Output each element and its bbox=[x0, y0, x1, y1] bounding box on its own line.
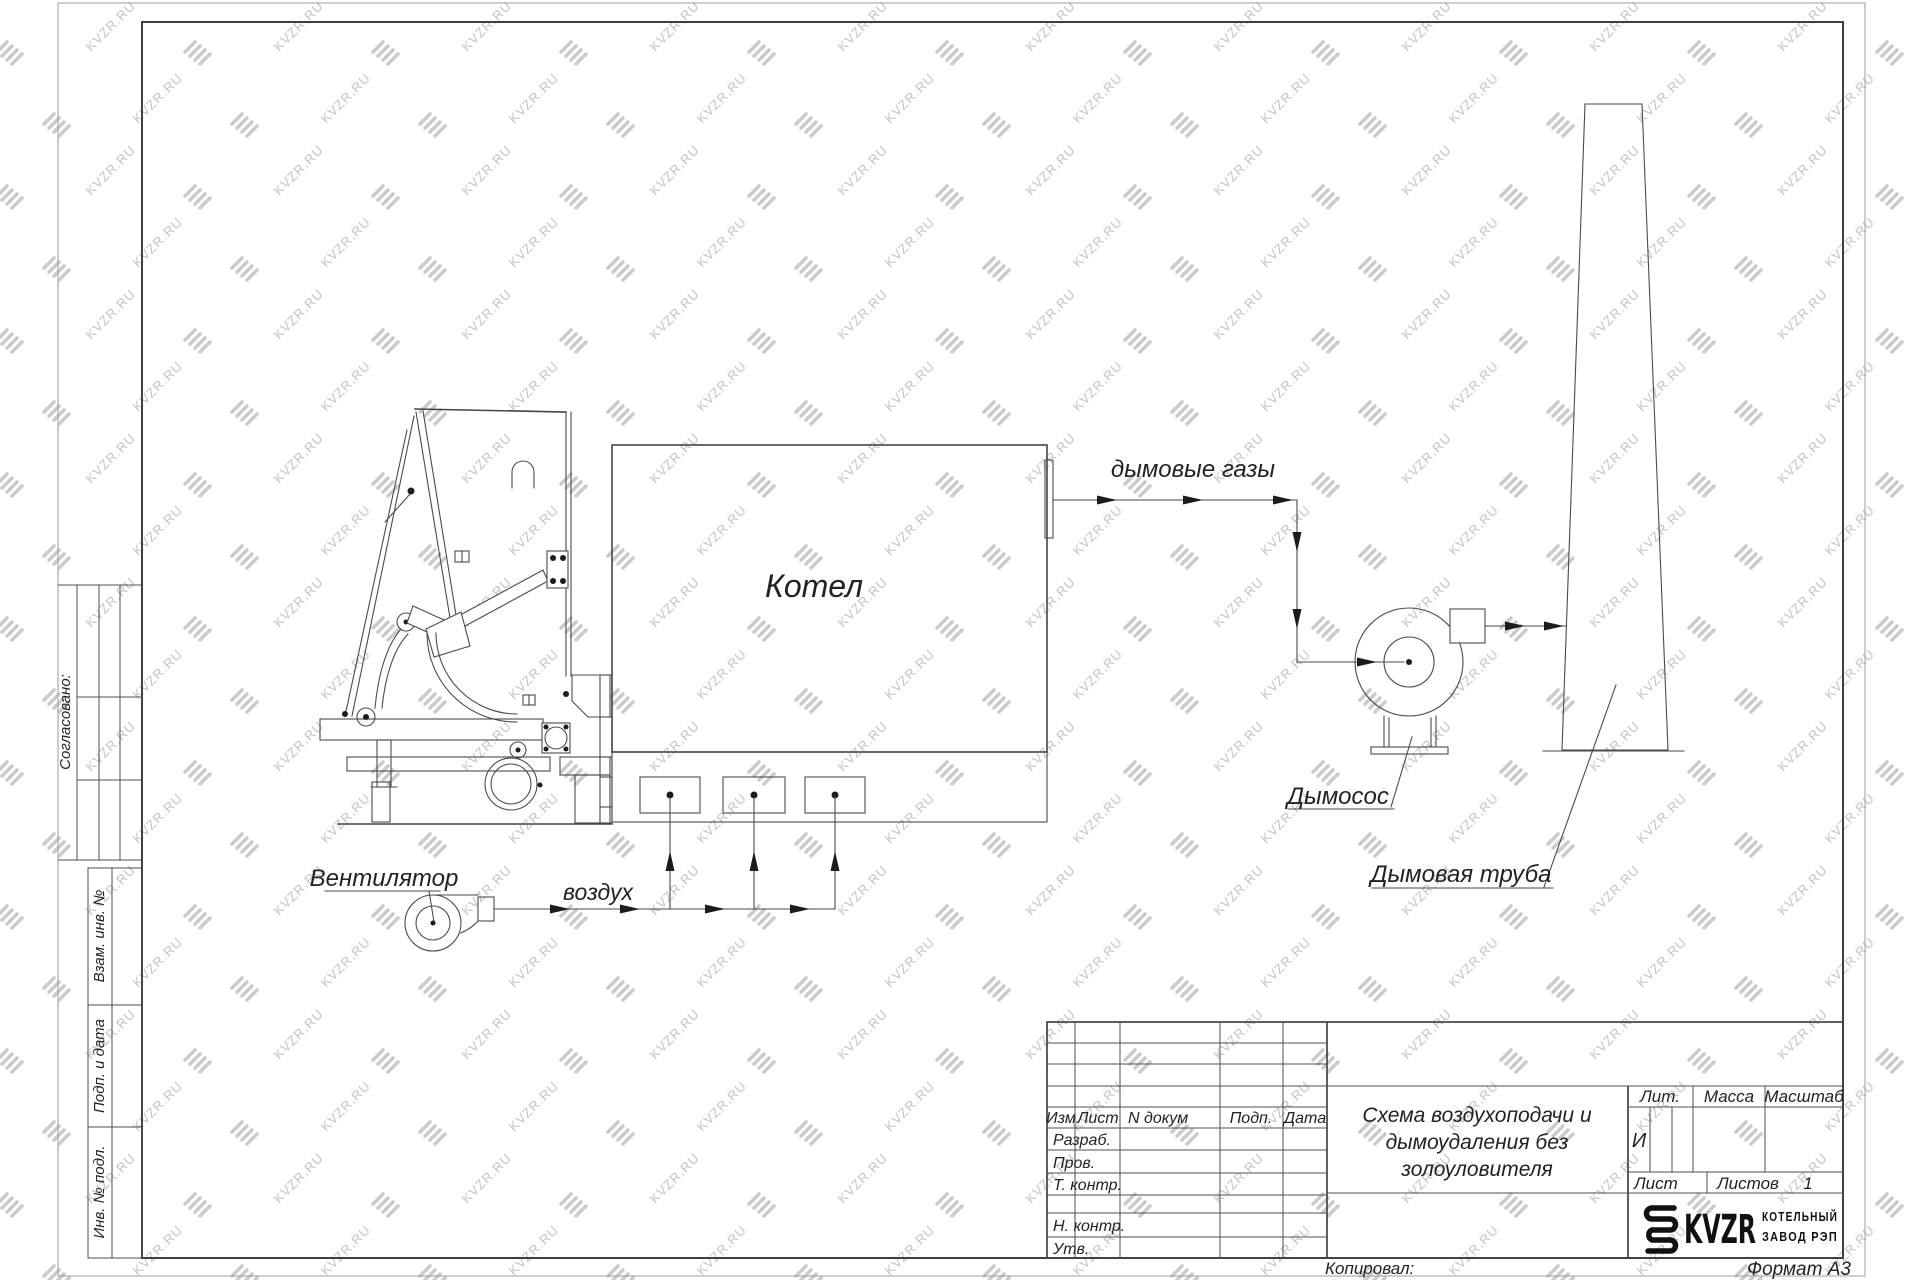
watermark-logo-icon bbox=[984, 1266, 1009, 1280]
watermark-logo-icon bbox=[1877, 330, 1902, 352]
watermark-text: KVZR.RU bbox=[1070, 646, 1126, 702]
drawing-title-line: Схема воздухоподачи и bbox=[1362, 1104, 1592, 1127]
watermark-logo-icon bbox=[420, 114, 445, 136]
org-name-line: ЗАВОД РЭП bbox=[1762, 1229, 1838, 1244]
watermark-logo-icon bbox=[1877, 906, 1902, 928]
watermark-text: KVZR.RU bbox=[1258, 502, 1314, 558]
watermark-logo-icon bbox=[984, 978, 1009, 1000]
watermark-text: KVZR.RU bbox=[647, 1006, 703, 1062]
watermark-logo-icon bbox=[420, 1122, 445, 1144]
watermark-text: KVZR.RU bbox=[83, 142, 139, 198]
watermark-text: KVZR.RU bbox=[1775, 862, 1831, 918]
watermark-logo-icon bbox=[1548, 834, 1573, 856]
watermark-text: KVZR.RU bbox=[1070, 502, 1126, 558]
watermark-logo-icon bbox=[373, 1194, 398, 1216]
watermark-logo-icon bbox=[796, 258, 821, 280]
watermark-logo-icon bbox=[1689, 1050, 1714, 1072]
watermark-text: KVZR.RU bbox=[506, 790, 562, 846]
watermark-logo-icon bbox=[1172, 978, 1197, 1000]
watermark-logo-icon bbox=[1125, 1050, 1150, 1072]
watermark-logo-icon bbox=[1736, 1122, 1761, 1144]
watermark-logo-icon bbox=[1689, 42, 1714, 64]
watermark-logo-icon bbox=[232, 1266, 257, 1280]
watermark-logo-icon bbox=[232, 114, 257, 136]
watermark-text: KVZR.RU bbox=[1446, 358, 1502, 414]
watermark-logo-icon bbox=[1125, 762, 1150, 784]
watermark-text: KVZR.RU bbox=[506, 1222, 562, 1278]
watermark-text: KVZR.RU bbox=[83, 0, 139, 54]
watermark-text: KVZR.RU bbox=[694, 1222, 750, 1278]
watermark-text: KVZR.RU bbox=[1399, 574, 1455, 630]
watermark-text: KVZR.RU bbox=[1587, 142, 1643, 198]
watermark-text: KVZR.RU bbox=[1399, 1006, 1455, 1062]
watermark-logo-icon bbox=[44, 114, 69, 136]
watermark-text: KVZR.RU bbox=[506, 934, 562, 990]
watermark-logo-icon bbox=[1689, 330, 1714, 352]
watermark-logo-icon bbox=[1689, 762, 1714, 784]
watermark-logo-icon bbox=[1172, 114, 1197, 136]
watermark-text: KVZR.RU bbox=[1822, 70, 1878, 126]
watermark-logo-icon bbox=[44, 978, 69, 1000]
watermark-logo-icon bbox=[420, 1266, 445, 1280]
watermark-logo-icon bbox=[1360, 258, 1385, 280]
watermark-logo-icon bbox=[0, 474, 22, 496]
signature-row-label: Утв. bbox=[1052, 1241, 1089, 1258]
copied-label: Копировал: bbox=[1325, 1259, 1415, 1278]
watermark-text: KVZR.RU bbox=[647, 1150, 703, 1206]
watermark-text: KVZR.RU bbox=[1258, 646, 1314, 702]
watermark-text: KVZR.RU bbox=[130, 214, 186, 270]
watermark-text: KVZR.RU bbox=[271, 718, 327, 774]
watermark-text: KVZR.RU bbox=[882, 502, 938, 558]
watermark-logo-icon bbox=[796, 402, 821, 424]
watermark-text: KVZR.RU bbox=[459, 430, 515, 486]
watermark-text: KVZR.RU bbox=[647, 430, 703, 486]
watermark-logo-icon bbox=[1736, 978, 1761, 1000]
watermark-text: KVZR.RU bbox=[130, 790, 186, 846]
watermark-logo-icon bbox=[1360, 978, 1385, 1000]
watermark-logo-icon bbox=[561, 186, 586, 208]
drawing-sheet: KVZR.RUKVZR.RUKVZR.RUKVZR.RUKVZR.RUKVZR.… bbox=[0, 0, 1920, 1280]
watermark-logo-icon bbox=[1501, 42, 1526, 64]
watermark-text: KVZR.RU bbox=[271, 142, 327, 198]
watermark-text: KVZR.RU bbox=[882, 1078, 938, 1134]
watermark-logo-icon bbox=[608, 834, 633, 856]
watermark-text: KVZR.RU bbox=[694, 214, 750, 270]
watermark-logo-icon bbox=[1125, 618, 1150, 640]
watermark-logo-icon bbox=[1313, 186, 1338, 208]
watermark-text: KVZR.RU bbox=[1587, 430, 1643, 486]
watermark-text: KVZR.RU bbox=[1211, 574, 1267, 630]
watermark-text: KVZR.RU bbox=[835, 0, 891, 54]
org-name-line: КОТЕЛЬНЫЙ bbox=[1762, 1209, 1838, 1224]
watermark-text: KVZR.RU bbox=[1822, 502, 1878, 558]
watermark-logo-icon bbox=[1877, 1194, 1902, 1216]
brand-text: KVZR bbox=[1684, 1207, 1756, 1253]
watermark-logo-icon bbox=[984, 258, 1009, 280]
watermark-logo-icon bbox=[1877, 1050, 1902, 1072]
watermark-text: KVZR.RU bbox=[694, 790, 750, 846]
watermark-logo-icon bbox=[1736, 258, 1761, 280]
watermark-text: KVZR.RU bbox=[694, 70, 750, 126]
side-block-label: Взам. инв. № bbox=[91, 890, 108, 983]
watermark-text: KVZR.RU bbox=[1775, 574, 1831, 630]
watermark-logo-icon bbox=[1548, 978, 1573, 1000]
watermark-text: KVZR.RU bbox=[459, 862, 515, 918]
watermark-logo-icon bbox=[561, 42, 586, 64]
watermark-text: KVZR.RU bbox=[318, 358, 374, 414]
air-flow-label: воздух bbox=[563, 879, 634, 905]
watermark-logo-icon bbox=[185, 762, 210, 784]
drawing-canvas: KVZR.RUKVZR.RUKVZR.RUKVZR.RUKVZR.RUKVZR.… bbox=[0, 0, 1920, 1280]
watermark-text: KVZR.RU bbox=[1023, 1006, 1079, 1062]
watermark-text: KVZR.RU bbox=[1446, 214, 1502, 270]
watermark-logo-icon bbox=[1877, 474, 1902, 496]
watermark-logo-icon bbox=[937, 330, 962, 352]
watermark-logo-icon bbox=[1172, 834, 1197, 856]
watermark-text: KVZR.RU bbox=[318, 214, 374, 270]
watermark-logo-icon bbox=[1736, 690, 1761, 712]
header-cell: Изм bbox=[1046, 1110, 1076, 1127]
watermark-logo-icon bbox=[984, 690, 1009, 712]
watermark-logo-icon bbox=[420, 258, 445, 280]
watermark-logo-icon bbox=[420, 834, 445, 856]
watermark-logo-icon bbox=[1501, 618, 1526, 640]
watermark-logo-icon bbox=[44, 258, 69, 280]
watermark-logo-icon bbox=[373, 906, 398, 928]
watermark-text: KVZR.RU bbox=[1775, 286, 1831, 342]
smoke-exhauster-label: Дымосос bbox=[1284, 783, 1389, 810]
watermark-logo-icon bbox=[796, 1122, 821, 1144]
watermark-logo-icon bbox=[373, 330, 398, 352]
watermark-text: KVZR.RU bbox=[1023, 142, 1079, 198]
watermark-text: KVZR.RU bbox=[1822, 646, 1878, 702]
watermark-text: KVZR.RU bbox=[835, 142, 891, 198]
signature-row-label: Т. контр. bbox=[1053, 1177, 1122, 1194]
watermark-text: KVZR.RU bbox=[130, 358, 186, 414]
watermark-text: KVZR.RU bbox=[694, 934, 750, 990]
watermark-logo-icon bbox=[232, 258, 257, 280]
watermark-logo-icon bbox=[1125, 906, 1150, 928]
watermark-logo-icon bbox=[1125, 42, 1150, 64]
watermark-text: KVZR.RU bbox=[1258, 358, 1314, 414]
lit-value: И bbox=[1632, 1130, 1647, 1152]
watermark-logo-icon bbox=[1125, 330, 1150, 352]
watermark-logo-icon bbox=[1313, 330, 1338, 352]
watermark-logo-icon bbox=[561, 762, 586, 784]
watermark-text: KVZR.RU bbox=[1070, 358, 1126, 414]
watermark-logo-icon bbox=[1877, 762, 1902, 784]
header-cell: Лист bbox=[1076, 1110, 1118, 1127]
watermark-logo-icon bbox=[1313, 42, 1338, 64]
watermark-text: KVZR.RU bbox=[835, 1150, 891, 1206]
fan-label: Вентилятор bbox=[310, 865, 459, 892]
watermark-text: KVZR.RU bbox=[459, 1006, 515, 1062]
watermark-text: KVZR.RU bbox=[1822, 214, 1878, 270]
watermark-logo-icon bbox=[749, 1050, 774, 1072]
watermark-logo-icon bbox=[232, 690, 257, 712]
watermark-logo-icon bbox=[1548, 690, 1573, 712]
scale-header: Масштаб bbox=[1764, 1087, 1845, 1106]
watermark-logo-icon bbox=[1548, 1266, 1573, 1280]
header-cell: Подп. bbox=[1230, 1110, 1273, 1127]
watermark-logo-icon bbox=[0, 330, 22, 352]
watermark-logo-icon bbox=[1313, 474, 1338, 496]
watermark-text: KVZR.RU bbox=[882, 1222, 938, 1278]
watermark-logo-icon bbox=[749, 1194, 774, 1216]
watermark-text: KVZR.RU bbox=[318, 1222, 374, 1278]
watermark-logo-icon bbox=[1736, 114, 1761, 136]
watermark-logo-icon bbox=[1360, 402, 1385, 424]
watermark-text: KVZR.RU bbox=[882, 790, 938, 846]
watermark-logo-icon bbox=[185, 618, 210, 640]
watermark-logo-icon bbox=[1501, 1194, 1526, 1216]
watermark-text: KVZR.RU bbox=[318, 934, 374, 990]
watermark-logo-icon bbox=[796, 834, 821, 856]
watermark-logo-icon bbox=[1313, 906, 1338, 928]
watermark-logo-icon bbox=[984, 546, 1009, 568]
watermark-text: KVZR.RU bbox=[1211, 286, 1267, 342]
watermark-logo-icon bbox=[1689, 186, 1714, 208]
watermark-logo-icon bbox=[1548, 402, 1573, 424]
watermark-logo-icon bbox=[44, 402, 69, 424]
watermark-logo-icon bbox=[1877, 42, 1902, 64]
watermark-logo-icon bbox=[373, 42, 398, 64]
watermark-text: KVZR.RU bbox=[1822, 358, 1878, 414]
watermark-logo-icon bbox=[1360, 546, 1385, 568]
watermark-logo-icon bbox=[561, 1050, 586, 1072]
watermark-text: KVZR.RU bbox=[1634, 934, 1690, 990]
watermark-text: KVZR.RU bbox=[1587, 286, 1643, 342]
watermark-logo-icon bbox=[1501, 330, 1526, 352]
watermark-logo-icon bbox=[1689, 474, 1714, 496]
watermark-logo-icon bbox=[1501, 1050, 1526, 1072]
side-block-label: Инв. № подл. bbox=[91, 1145, 108, 1238]
watermark-logo-icon bbox=[1360, 114, 1385, 136]
watermark-logo-icon bbox=[1736, 402, 1761, 424]
watermark-logo-icon bbox=[0, 1194, 22, 1216]
watermark-logo-icon bbox=[561, 330, 586, 352]
watermark-logo-icon bbox=[561, 618, 586, 640]
drawing-title-line: дымоудаления без bbox=[1386, 1131, 1569, 1154]
watermark-text: KVZR.RU bbox=[130, 934, 186, 990]
watermark-logo-icon bbox=[0, 906, 22, 928]
watermark-logo-icon bbox=[608, 978, 633, 1000]
watermark-logo-icon bbox=[937, 1050, 962, 1072]
watermark-text: KVZR.RU bbox=[506, 1078, 562, 1134]
watermark-text: KVZR.RU bbox=[459, 286, 515, 342]
watermark-text: KVZR.RU bbox=[1258, 70, 1314, 126]
watermark-text: KVZR.RU bbox=[1822, 790, 1878, 846]
sheet-label: Лист bbox=[1633, 1174, 1678, 1193]
watermark-text: KVZR.RU bbox=[130, 502, 186, 558]
watermark-text: KVZR.RU bbox=[1399, 718, 1455, 774]
watermark-text: KVZR.RU bbox=[130, 70, 186, 126]
watermark-logo-icon bbox=[373, 618, 398, 640]
watermark-logo-icon bbox=[0, 762, 22, 784]
agreed-label: Согласовано: bbox=[57, 674, 74, 770]
watermark-text: KVZR.RU bbox=[83, 574, 139, 630]
signature-row-label: Пров. bbox=[1053, 1155, 1095, 1172]
watermark-text: KVZR.RU bbox=[1634, 502, 1690, 558]
watermark-logo-icon bbox=[1501, 762, 1526, 784]
watermark-text: KVZR.RU bbox=[1587, 574, 1643, 630]
watermark-logo-icon bbox=[1360, 834, 1385, 856]
signature-row-label: Разраб. bbox=[1053, 1132, 1111, 1149]
watermark-logo-icon bbox=[1689, 906, 1714, 928]
watermark-text: KVZR.RU bbox=[271, 1006, 327, 1062]
watermark-text: KVZR.RU bbox=[459, 718, 515, 774]
watermark-text: KVZR.RU bbox=[1023, 574, 1079, 630]
watermark-logo-icon bbox=[937, 42, 962, 64]
watermark-text: KVZR.RU bbox=[83, 718, 139, 774]
watermark-text: KVZR.RU bbox=[1211, 142, 1267, 198]
watermark-logo-icon bbox=[185, 42, 210, 64]
watermark-logo-icon bbox=[44, 1266, 69, 1280]
watermark-logo-icon bbox=[44, 546, 69, 568]
watermark-logo-icon bbox=[608, 1266, 633, 1280]
smoke-exhauster-drawing: Дымосос bbox=[1284, 608, 1566, 810]
watermark-logo-icon bbox=[749, 618, 774, 640]
watermark-logo-icon bbox=[984, 1122, 1009, 1144]
watermark-text: KVZR.RU bbox=[1070, 934, 1126, 990]
watermark-logo-icon bbox=[0, 186, 22, 208]
watermark-logo-icon bbox=[0, 618, 22, 640]
watermark-logo-icon bbox=[185, 330, 210, 352]
watermark-text: KVZR.RU bbox=[694, 646, 750, 702]
watermark-text: KVZR.RU bbox=[1446, 934, 1502, 990]
watermark-text: KVZR.RU bbox=[318, 1078, 374, 1134]
watermark-logo-icon bbox=[1877, 186, 1902, 208]
header-cell: Дата bbox=[1282, 1110, 1326, 1127]
sheet-format-label: Формат А3 bbox=[1747, 1259, 1851, 1280]
watermark-text: KVZR.RU bbox=[1775, 430, 1831, 486]
watermark-text: KVZR.RU bbox=[506, 70, 562, 126]
watermark-text: KVZR.RU bbox=[1211, 1006, 1267, 1062]
watermark-text: KVZR.RU bbox=[1070, 70, 1126, 126]
watermark-text: KVZR.RU bbox=[506, 358, 562, 414]
watermark-text: KVZR.RU bbox=[647, 0, 703, 54]
watermark-logo-icon bbox=[185, 1050, 210, 1072]
watermark-logo-icon bbox=[749, 186, 774, 208]
watermark-logo-icon bbox=[1172, 258, 1197, 280]
watermark-text: KVZR.RU bbox=[1023, 0, 1079, 54]
watermark-text: KVZR.RU bbox=[882, 358, 938, 414]
watermark-logo-icon bbox=[749, 42, 774, 64]
sheets-value: 1 bbox=[1803, 1174, 1812, 1193]
watermark-text: KVZR.RU bbox=[835, 430, 891, 486]
watermark-logo-icon bbox=[185, 186, 210, 208]
watermark-text: KVZR.RU bbox=[1634, 70, 1690, 126]
watermark-text: KVZR.RU bbox=[318, 70, 374, 126]
watermark-logo-icon bbox=[984, 834, 1009, 856]
watermark-text: KVZR.RU bbox=[835, 1006, 891, 1062]
watermark-layer: KVZR.RUKVZR.RUKVZR.RUKVZR.RUKVZR.RUKVZR.… bbox=[0, 0, 1920, 1280]
watermark-logo-icon bbox=[1172, 690, 1197, 712]
watermark-text: KVZR.RU bbox=[1023, 718, 1079, 774]
watermark-logo-icon bbox=[1501, 474, 1526, 496]
watermark-logo-icon bbox=[1548, 114, 1573, 136]
boiler-label: Котел bbox=[765, 568, 863, 604]
watermark-text: KVZR.RU bbox=[1211, 0, 1267, 54]
kvzr-logo: KVZR КОТЕЛЬНЫЙ ЗАВОД РЭП bbox=[1647, 1207, 1839, 1253]
watermark-text: KVZR.RU bbox=[647, 718, 703, 774]
watermark-text: KVZR.RU bbox=[459, 1150, 515, 1206]
watermark-text: KVZR.RU bbox=[318, 790, 374, 846]
watermark-logo-icon bbox=[1172, 1266, 1197, 1280]
lit-header: Лит. bbox=[1639, 1087, 1680, 1106]
watermark-logo-icon bbox=[1125, 186, 1150, 208]
watermark-text: KVZR.RU bbox=[1446, 790, 1502, 846]
watermark-text: KVZR.RU bbox=[318, 502, 374, 558]
watermark-text: KVZR.RU bbox=[1399, 430, 1455, 486]
watermark-text: KVZR.RU bbox=[1775, 1006, 1831, 1062]
watermark-text: KVZR.RU bbox=[1070, 790, 1126, 846]
watermark-text: KVZR.RU bbox=[1211, 862, 1267, 918]
watermark-text: KVZR.RU bbox=[1211, 1150, 1267, 1206]
inner-frame bbox=[142, 22, 1843, 1258]
watermark-text: KVZR.RU bbox=[1775, 142, 1831, 198]
watermark-text: KVZR.RU bbox=[1023, 430, 1079, 486]
title-block: Изм Лист N докум Подп. Дата Разраб. Пров… bbox=[1046, 1022, 1845, 1258]
watermark-text: KVZR.RU bbox=[1258, 1222, 1314, 1278]
watermark-text: KVZR.RU bbox=[1023, 286, 1079, 342]
watermark-text: KVZR.RU bbox=[882, 214, 938, 270]
watermark-logo-icon bbox=[796, 1266, 821, 1280]
watermark-logo-icon bbox=[608, 1122, 633, 1144]
watermark-logo-icon bbox=[185, 474, 210, 496]
watermark-text: KVZR.RU bbox=[130, 1078, 186, 1134]
watermark-logo-icon bbox=[0, 1050, 22, 1072]
watermark-text: KVZR.RU bbox=[1775, 0, 1831, 54]
watermark-logo-icon bbox=[796, 690, 821, 712]
watermark-logo-icon bbox=[185, 1194, 210, 1216]
watermark-text: KVZR.RU bbox=[1258, 934, 1314, 990]
watermark-text: KVZR.RU bbox=[1634, 790, 1690, 846]
watermark-text: KVZR.RU bbox=[1634, 358, 1690, 414]
sheets-label: Листов bbox=[1716, 1174, 1779, 1193]
watermark-logo-icon bbox=[796, 114, 821, 136]
watermark-logo-icon bbox=[232, 546, 257, 568]
watermark-logo-icon bbox=[749, 330, 774, 352]
watermark-text: KVZR.RU bbox=[1634, 214, 1690, 270]
watermark-text: KVZR.RU bbox=[271, 286, 327, 342]
watermark-logo-icon bbox=[937, 1194, 962, 1216]
watermark-logo-icon bbox=[1313, 762, 1338, 784]
watermark-logo-icon bbox=[749, 762, 774, 784]
watermark-text: KVZR.RU bbox=[1822, 934, 1878, 990]
watermark-logo-icon bbox=[44, 834, 69, 856]
watermark-logo-icon bbox=[937, 474, 962, 496]
drawing-title-line: золоуловителя bbox=[1400, 1158, 1553, 1181]
watermark-logo-icon bbox=[984, 402, 1009, 424]
watermark-text: KVZR.RU bbox=[1070, 214, 1126, 270]
watermark-text: KVZR.RU bbox=[647, 862, 703, 918]
watermark-text: KVZR.RU bbox=[647, 574, 703, 630]
watermark-logo-icon bbox=[1736, 546, 1761, 568]
watermark-logo-icon bbox=[373, 474, 398, 496]
watermark-text: KVZR.RU bbox=[1258, 214, 1314, 270]
watermark-text: KVZR.RU bbox=[1775, 718, 1831, 774]
watermark-logo-icon bbox=[561, 1194, 586, 1216]
watermark-logo-icon bbox=[232, 1122, 257, 1144]
watermark-logo-icon bbox=[232, 834, 257, 856]
watermark-text: KVZR.RU bbox=[83, 430, 139, 486]
watermark-text: KVZR.RU bbox=[882, 646, 938, 702]
watermark-text: KVZR.RU bbox=[1399, 286, 1455, 342]
watermark-logo-icon bbox=[796, 978, 821, 1000]
flue-gases-label: дымовые газы bbox=[1111, 456, 1275, 483]
